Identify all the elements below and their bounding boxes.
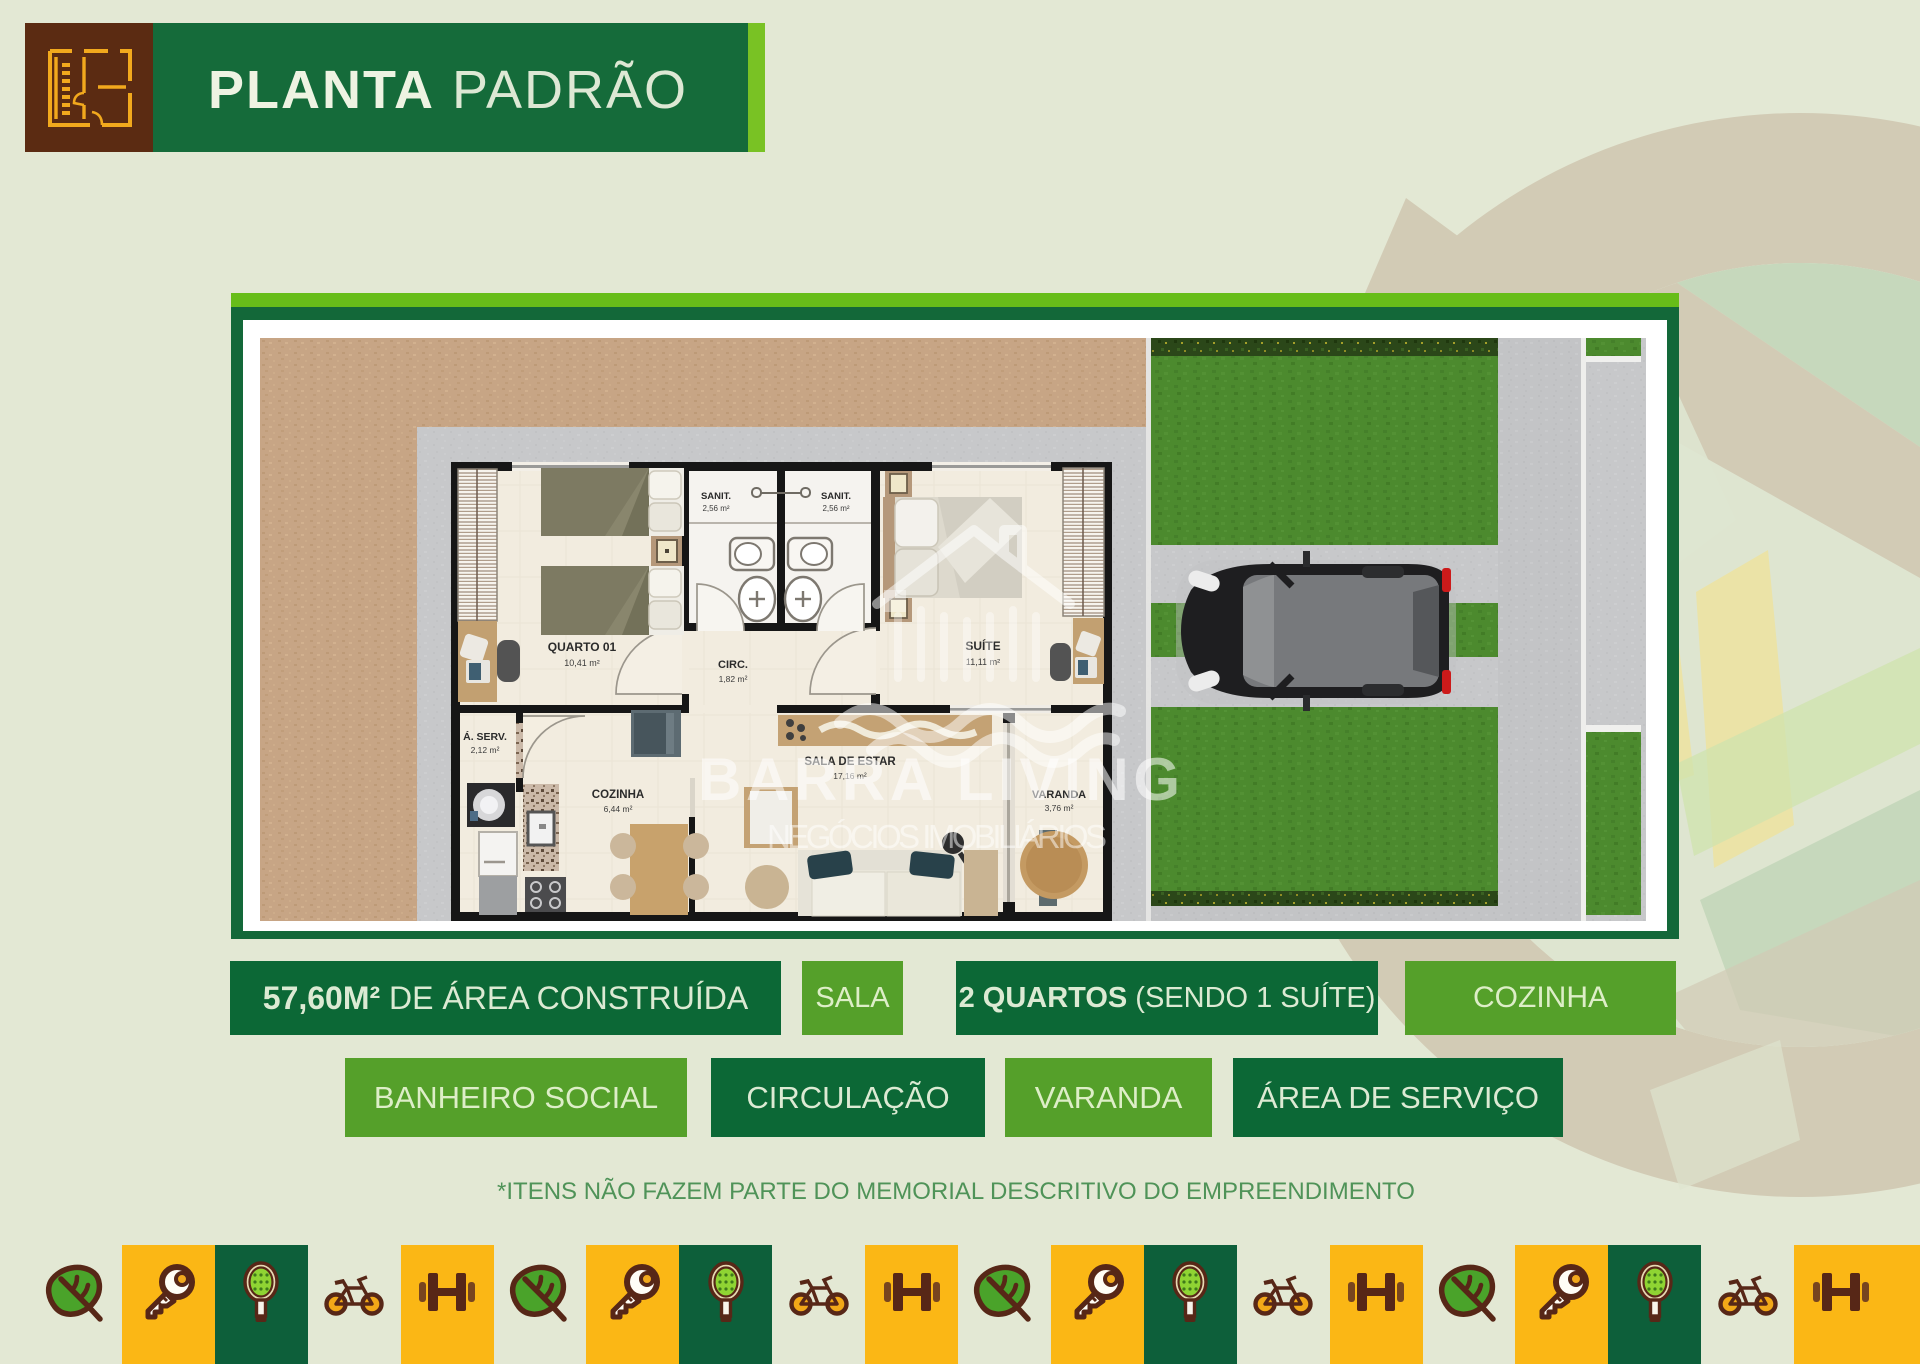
svg-text:QUARTO 01: QUARTO 01 (548, 640, 617, 654)
svg-text:COZINHA: COZINHA (592, 789, 644, 801)
svg-text:BARRA LIVING: BARRA LIVING (698, 746, 1180, 813)
svg-text:CIRC.: CIRC. (718, 659, 748, 671)
svg-text:SANIT.: SANIT. (701, 491, 731, 502)
svg-text:11,11 m²: 11,11 m² (966, 657, 1000, 667)
svg-text:2,56 m²: 2,56 m² (822, 504, 849, 513)
svg-text:2,56 m²: 2,56 m² (702, 504, 729, 513)
svg-text:Á. SERV.: Á. SERV. (463, 730, 507, 743)
svg-text:SANIT.: SANIT. (821, 491, 851, 502)
svg-text:NEGÓCIOS IMOBILIÁRIOS: NEGÓCIOS IMOBILIÁRIOS (767, 818, 1107, 855)
svg-text:6,44 m²: 6,44 m² (604, 804, 633, 814)
svg-text:2,12 m²: 2,12 m² (471, 745, 500, 755)
svg-text:10,41 m²: 10,41 m² (564, 658, 600, 668)
svg-text:1,82 m²: 1,82 m² (719, 674, 748, 684)
